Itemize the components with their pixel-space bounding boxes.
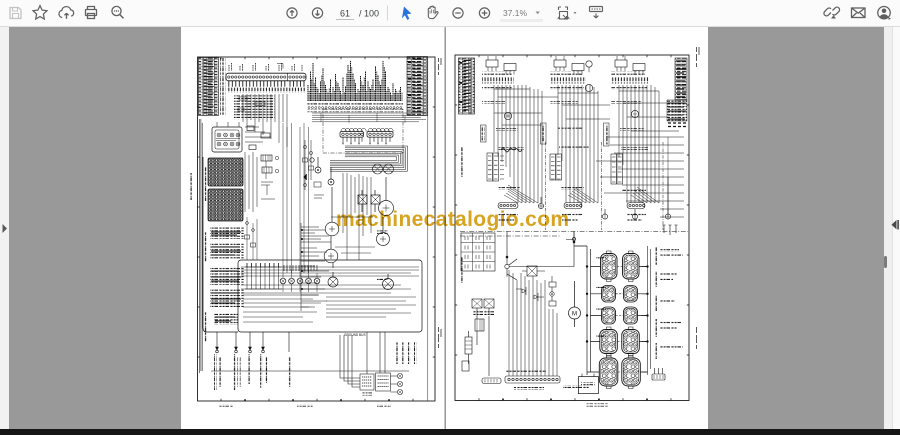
svg-text:/ 100: / 100 [359, 9, 379, 19]
svg-text:37.1%: 37.1% [503, 8, 528, 18]
svg-text:61: 61 [340, 9, 350, 19]
svg-text:M: M [572, 312, 577, 318]
svg-text:GROUND BUS: GROUND BUS [344, 333, 366, 337]
